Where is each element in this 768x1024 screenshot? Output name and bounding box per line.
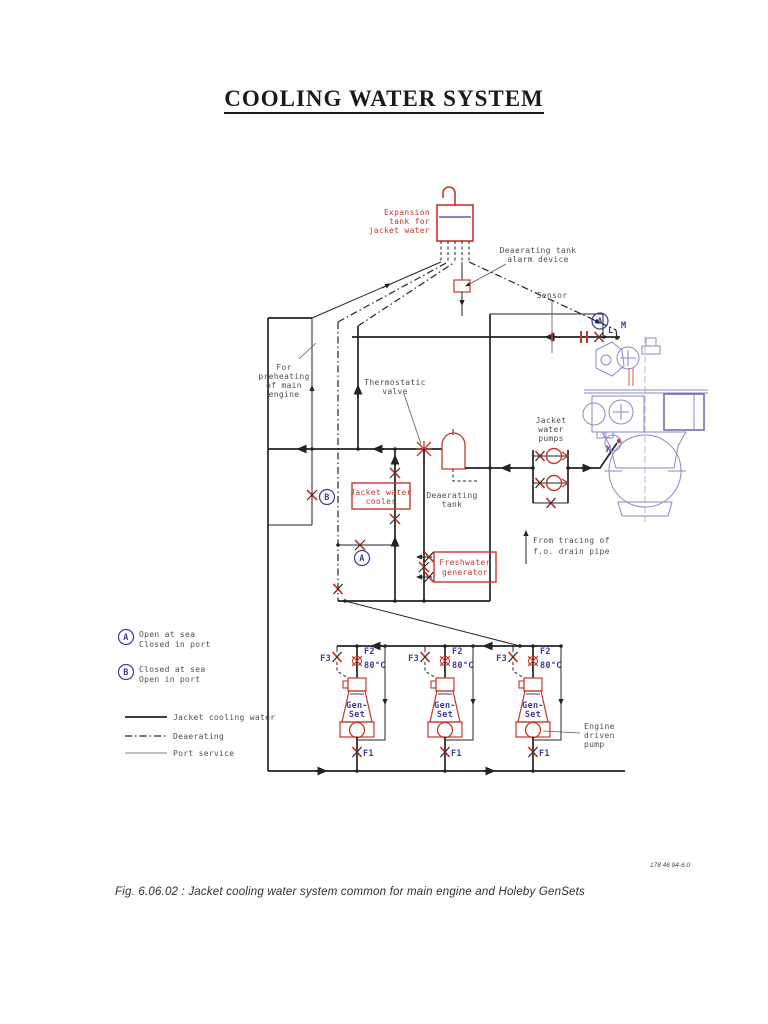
svg-text:F2: F2 [452,647,463,657]
genset-unit-2: F3 F2 80°C Gen- Set F1 [408,644,475,773]
legend-b-line1: Closed at sea [139,665,206,674]
legend-b-line2: Open in port [139,675,200,684]
svg-text:engine: engine [269,390,300,399]
svg-text:tank: tank [442,500,462,509]
svg-text:A: A [123,633,128,643]
valve-f3-label: F3 [320,654,331,664]
deaerating-tank-group: Deaerating tank [426,429,533,509]
svg-text:driven: driven [584,731,615,740]
thermostatic-valve-label: Thermostatic [364,378,425,387]
genset-pump-circle [350,723,365,738]
deaerating-tank-label: Deaerating [426,491,477,500]
freshwater-generator-group: A Freshwater generator [334,449,497,603]
drawing-number: 178 46 94-6.0 [650,862,690,869]
deaerating-alarm-group: Deaerating tank alarm device [454,246,576,316]
svg-text:cooler: cooler [366,497,397,506]
jacket-water-cooler-label: Jacket water [350,488,411,497]
svg-text:alarm device: alarm device [507,255,568,264]
svg-text:pumps: pumps [538,434,564,443]
svg-text:80°C: 80°C [452,661,474,671]
svg-text:Set: Set [437,710,453,720]
svg-text:F3: F3 [496,654,507,664]
main-engine-drawing [583,336,708,522]
svg-text:f.o. drain pipe: f.o. drain pipe [533,547,610,556]
svg-text:pump: pump [584,740,604,749]
svg-text:F1: F1 [539,749,550,759]
fo-tracing-label: From tracing of [533,536,610,545]
temp-label: 80°C [364,661,386,671]
svg-text:tank for: tank for [389,217,430,226]
svg-text:A: A [359,554,364,564]
svg-text:Set: Set [349,710,365,720]
genset-unit-1: F3 F2 80°C Gen- Set F1 [320,644,387,773]
freshwater-generator-label: Freshwater [439,558,490,567]
connection-l: L [608,326,613,336]
valve-f2-label: F2 [364,647,375,657]
document-page: COOLING WATER SYSTEM [0,0,768,1024]
line-legend-deaerating: Deaerating [173,732,224,741]
svg-text:A: A [597,317,602,327]
preheating-label: For [276,363,291,372]
line-legend-jacket: Jacket cooling water [173,713,275,722]
svg-text:generator: generator [442,568,488,577]
line-legend-port: Port service [173,749,234,758]
genset-manifold-group [268,601,625,771]
legend-a-line1: Open at sea [139,630,195,639]
svg-text:F2: F2 [540,647,551,657]
jacket-water-pumps-group: Jacket water pumps K [531,416,621,508]
genset-unit-3: F3 F2 80°C Gen- Set F1 [496,644,563,773]
legend-a-line2: Closed in port [139,640,211,649]
figure-caption: Fig. 6.06.02 : Jacket cooling water syst… [115,886,585,898]
valve-legend-group: A Open at sea Closed in port B Closed at… [119,630,211,685]
svg-text:80°C: 80°C [540,661,562,671]
genset-pump-circle [438,723,453,738]
svg-text:Set: Set [525,710,541,720]
valve-f1-label: F1 [363,749,374,759]
sensor-label: Sensor [537,291,568,300]
svg-text:jacket water: jacket water [369,226,430,235]
svg-text:preheating: preheating [258,372,309,381]
engine-driven-pump-group: Engine driven pump [543,722,615,749]
svg-text:B: B [123,668,128,678]
svg-text:of main: of main [266,381,302,390]
svg-text:valve: valve [382,387,408,396]
expansion-tank-label: Expansion [384,208,430,217]
svg-text:F1: F1 [451,749,462,759]
line-legend-group: Jacket cooling water Deaerating Port ser… [125,713,275,758]
expansion-tank-group: Expansion tank for jacket water [369,187,473,262]
engine-driven-pump-label: Engine [584,722,615,731]
deaerating-alarm-label: Deaerating tank [500,246,577,255]
genset-pump-circle [526,723,541,738]
svg-text:F3: F3 [408,654,419,664]
jacket-water-pumps-label: Jacket [536,416,567,425]
diagram-canvas: Expansion tank for jacket water Deaerati… [0,0,768,1024]
fo-tracing-group: From tracing of f.o. drain pipe [526,531,610,564]
valve-b-letter: B [324,493,329,503]
jacket-water-cooler-group: Jacket water cooler [350,449,411,601]
connection-m: M [621,321,626,331]
svg-text:water: water [538,425,564,434]
